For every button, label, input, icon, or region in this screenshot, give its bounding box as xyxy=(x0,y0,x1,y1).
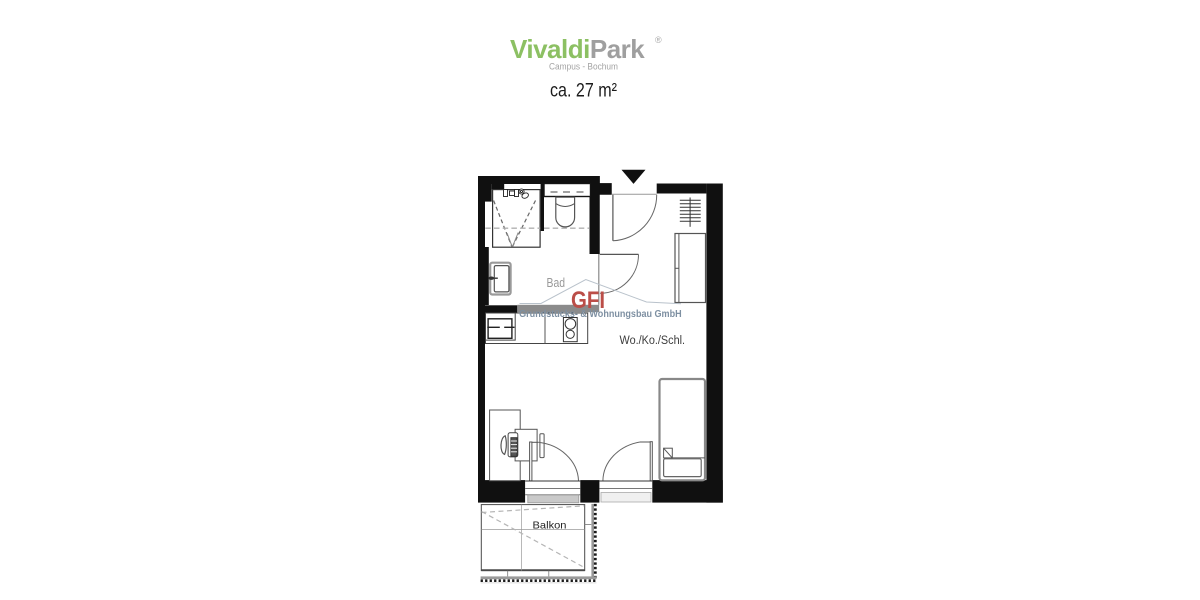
svg-text:Balkon: Balkon xyxy=(533,520,567,532)
svg-text:®: ® xyxy=(655,35,662,45)
svg-text:ca. 27 m²: ca. 27 m² xyxy=(550,80,617,102)
svg-text:Wo./Ko./Schl.: Wo./Ko./Schl. xyxy=(620,335,686,347)
svg-text:Bad: Bad xyxy=(547,276,566,290)
svg-text:Campus - Bochum: Campus - Bochum xyxy=(549,62,618,73)
svg-text:Grundstücks- & Wohnungsbau Gmb: Grundstücks- & Wohnungsbau GmbH xyxy=(519,309,682,320)
svg-text:VivaldiPark: VivaldiPark xyxy=(510,34,645,64)
